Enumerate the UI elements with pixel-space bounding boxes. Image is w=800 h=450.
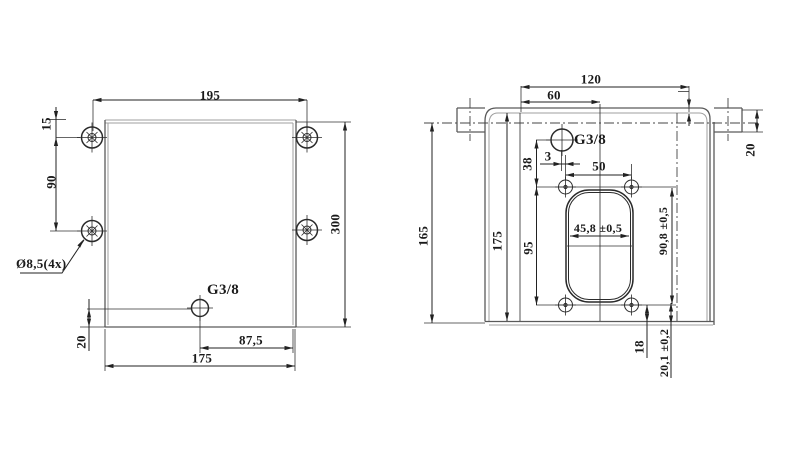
dim-hole-edge-offset: 15 <box>40 117 53 131</box>
right-view-holes <box>546 124 642 316</box>
drawing-canvas <box>0 0 800 450</box>
dim-total-height: 175 <box>491 231 504 251</box>
bolt-hole-top-left <box>555 177 576 198</box>
dim-slot-to-bottom: 20,1 ±0,2 <box>658 329 670 377</box>
dim-port-offset: 3 <box>545 150 552 163</box>
dim-port-bottom-offset: 20 <box>75 335 88 349</box>
dim-face-width-total: 120 <box>581 73 601 86</box>
label-port-left: G3/8 <box>207 283 239 298</box>
dim-slot-width: 45,8 ±0,5 <box>574 222 622 234</box>
dim-tab-width: 20 <box>744 143 757 157</box>
label-port-right: G3/8 <box>574 133 606 148</box>
dim-hole-spacing-horiz: 50 <box>592 160 606 173</box>
technical-drawing-page: 195 15 90 Ø8,5(4x) G3/8 20 87,5 175 300 … <box>0 0 800 450</box>
left-view-outline <box>105 120 296 327</box>
port-hole-left <box>187 295 213 321</box>
dim-port-to-holes: 38 <box>521 157 534 171</box>
note-hole-diameter: Ø8,5(4x) <box>16 257 66 270</box>
dim-slot-height: 90,8 ±0,5 <box>657 207 669 255</box>
dim-port-from-right: 87,5 <box>239 334 263 347</box>
right-view-extensions <box>424 86 763 323</box>
left-view-holes <box>77 123 322 322</box>
bolt-hole-bottom-left <box>555 295 576 316</box>
dim-plate-width-top: 195 <box>200 89 220 102</box>
dim-plate-width-bottom: 175 <box>192 352 212 365</box>
dim-hole-spacing-vert: 90 <box>45 175 58 189</box>
dim-hole-to-bottom: 18 <box>633 340 646 354</box>
dim-plate-height: 300 <box>329 214 342 234</box>
dim-flange-height: 165 <box>417 226 430 246</box>
dim-face-width-center: 60 <box>547 89 561 102</box>
flange-hole-top-left <box>77 123 107 153</box>
dim-hole-spacing-vert-right: 95 <box>522 241 535 255</box>
